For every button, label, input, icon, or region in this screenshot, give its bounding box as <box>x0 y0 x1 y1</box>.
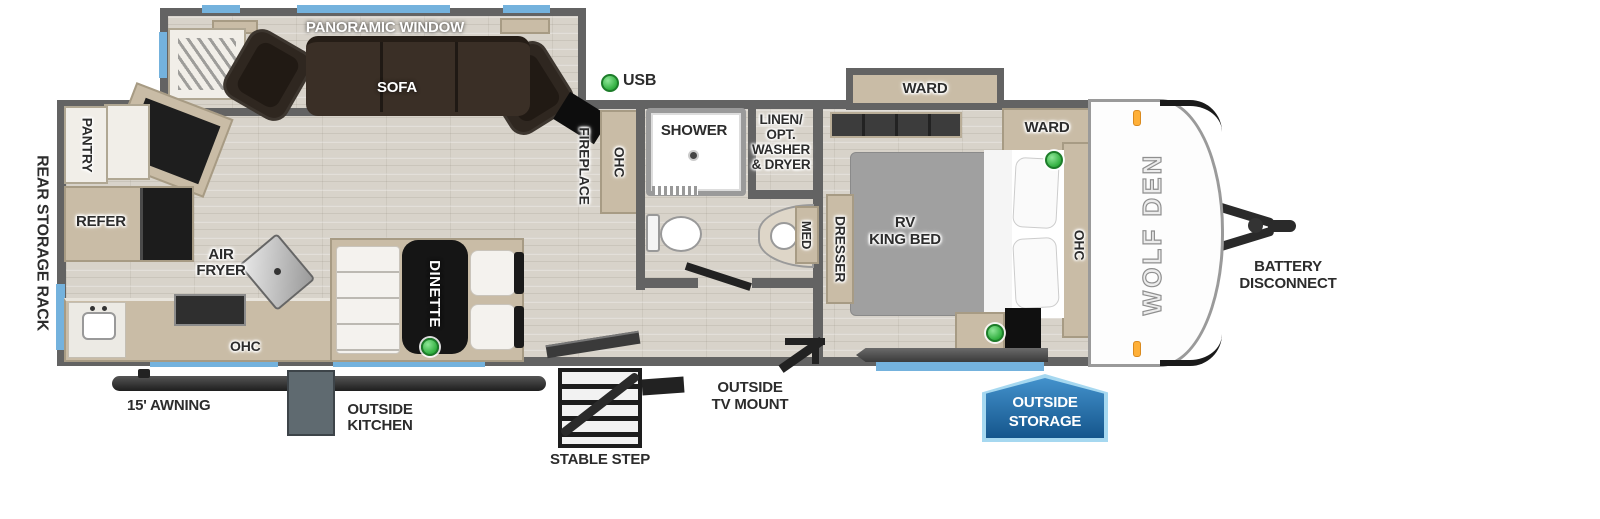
storage-window-strip <box>876 362 1044 371</box>
usb-dot-dinette <box>421 338 439 356</box>
ohc-mid-label: OHC <box>611 147 626 178</box>
usb-dot-ward <box>1045 151 1063 169</box>
hutch-cabinet <box>104 104 150 180</box>
linen-line4: & DRYER <box>744 157 818 172</box>
floorplan-canvas: WOLF DEN OUTSIDE STORAGE REAR STORAGE RA… <box>0 0 1600 519</box>
slide-window-accent-2 <box>297 5 450 13</box>
sofa-label: SOFA <box>347 80 447 96</box>
hitch-bar-top <box>1217 202 1275 228</box>
hitch-coupler <box>1268 220 1296 232</box>
rear-storage-rack-label: REAR STORAGE RACK <box>33 155 50 331</box>
slide-side-window <box>159 32 167 78</box>
pantry-label: PANTRY <box>79 118 94 173</box>
refer-label: REFER <box>76 214 126 230</box>
ohc-bedroom-label: OHC <box>1071 230 1086 261</box>
bath-bottom-wall-left <box>636 278 698 288</box>
cap-trim-top <box>1160 100 1222 132</box>
chair-frame-top <box>514 252 524 294</box>
usb-dot-main <box>601 74 619 92</box>
outside-tv-label: OUTSIDE TV MOUNT <box>698 379 802 413</box>
fireplace-label: FIREPLACE <box>576 127 591 205</box>
linen-line1: LINEN/ <box>744 112 818 127</box>
toilet-tank <box>646 214 660 252</box>
cooktop <box>174 294 246 326</box>
hitch-bar-bottom <box>1217 226 1275 252</box>
bed-line2: KING BED <box>845 231 965 248</box>
air-fryer-line2: FRYER <box>181 263 261 279</box>
sofa-seam-1 <box>380 42 383 112</box>
bed-sheet-edge <box>984 150 1014 318</box>
battery-line1: BATTERY <box>1236 258 1340 275</box>
faucet-icon <box>90 306 95 311</box>
air-fryer-label: AIR FRYER <box>181 247 261 279</box>
tv-mount-bracket-h <box>785 338 825 345</box>
marker-light-bottom <box>1133 341 1141 357</box>
step-side-tray <box>641 377 684 396</box>
battery-disconnect-label: BATTERY DISCONNECT <box>1236 258 1340 292</box>
stable-step-label: STABLE STEP <box>548 452 652 468</box>
linen-line3: WASHER <box>744 142 818 157</box>
step-rung-4 <box>562 432 638 437</box>
marker-light-top <box>1133 110 1141 126</box>
awning-mount <box>138 369 150 378</box>
outside-tv-line2: TV MOUNT <box>698 396 802 413</box>
brand-logo: WOLF DEN <box>1138 153 1166 316</box>
dinette-chair-top <box>470 250 516 296</box>
bed-label: RV KING BED <box>845 214 965 248</box>
bath-bottom-wall-right <box>752 278 822 288</box>
dinette-bench <box>336 246 400 354</box>
dinette-label: DINETTE <box>426 260 442 328</box>
ohc-kitchen-label: OHC <box>230 339 261 354</box>
bedroom-window-blind <box>830 112 962 138</box>
ward-slide-label: WARD <box>875 81 975 97</box>
kitchen-sink <box>82 312 116 340</box>
storage-compartment-bar <box>856 348 1048 362</box>
pillow-bottom <box>1012 237 1060 309</box>
chair-frame-bottom <box>514 306 524 348</box>
bath-left-wall <box>636 103 645 290</box>
outside-storage-line2: STORAGE <box>986 412 1104 431</box>
tongue-jack <box>1248 218 1263 233</box>
hitch-aframe <box>1218 196 1298 258</box>
linen-bottom-wall <box>748 190 823 199</box>
ward-inner-label: WARD <box>997 120 1097 136</box>
outside-kitchen-line2: KITCHEN <box>340 418 420 434</box>
outside-storage-line1: OUTSIDE <box>986 393 1104 412</box>
air-fryer-handle <box>274 268 281 275</box>
cap-trim-bottom <box>1160 334 1222 366</box>
shower-drain <box>690 152 697 159</box>
med-label: MED <box>799 221 813 249</box>
linen-line2: OPT. <box>744 127 818 142</box>
air-fryer-line1: AIR <box>181 247 261 263</box>
usb-dot-nightstand <box>986 324 1004 342</box>
outside-tv-line1: OUTSIDE <box>698 379 802 396</box>
panoramic-window-label: PANORAMIC WINDOW <box>285 20 485 36</box>
slide-window-accent-3 <box>503 5 550 13</box>
tv-mount-bracket-v <box>812 338 819 364</box>
outside-kitchen-line1: OUTSIDE <box>340 402 420 418</box>
vanity-sink <box>770 222 798 250</box>
shower-door-track <box>652 186 698 195</box>
stable-step <box>558 368 642 448</box>
outside-kitchen-label: OUTSIDE KITCHEN <box>340 402 420 434</box>
linen-label: LINEN/ OPT. WASHER & DRYER <box>744 112 818 172</box>
shower-label: SHOWER <box>649 123 739 139</box>
outside-kitchen-door <box>287 370 335 436</box>
end-table-right <box>500 18 550 34</box>
sofa-seam-2 <box>455 42 458 112</box>
faucet-icon-2 <box>102 306 107 311</box>
awning-label: 15' AWNING <box>127 398 211 414</box>
dinette-chair-bottom <box>470 304 516 350</box>
sofa <box>306 36 530 116</box>
usb-label: USB <box>623 72 656 89</box>
toilet-bowl <box>660 216 702 252</box>
bed-line1: RV <box>845 214 965 231</box>
slide-window-accent-1 <box>202 5 240 13</box>
outside-storage-label: OUTSIDE STORAGE <box>986 393 1104 431</box>
battery-line2: DISCONNECT <box>1236 275 1340 292</box>
